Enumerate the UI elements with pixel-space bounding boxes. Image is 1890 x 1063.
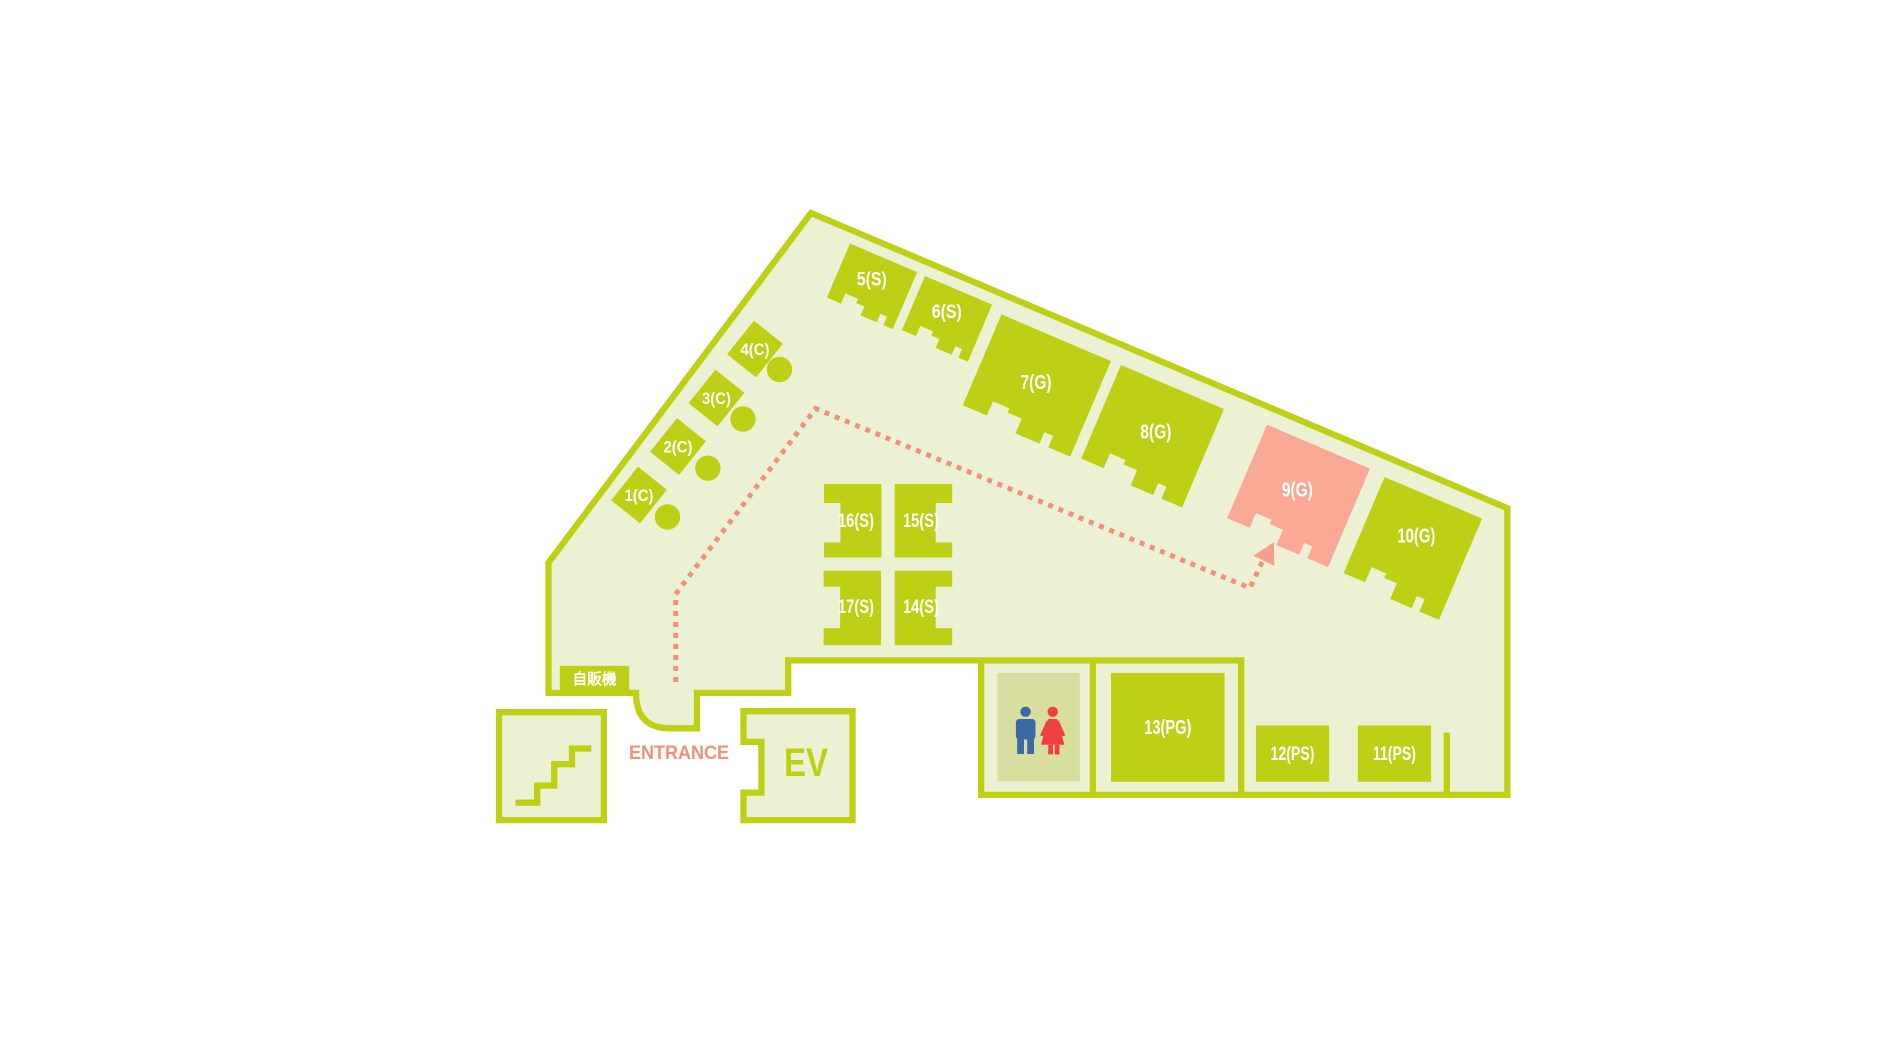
svg-text:ENTRANCE: ENTRANCE [629,743,729,764]
svg-text:7(G): 7(G) [1021,371,1052,394]
svg-text:6(S): 6(S) [932,302,962,323]
svg-text:14(S): 14(S) [903,597,939,618]
svg-text:11(PS): 11(PS) [1373,744,1416,765]
svg-text:2(C): 2(C) [664,438,693,457]
svg-text:EV: EV [784,741,828,785]
svg-text:16(S): 16(S) [838,511,874,532]
svg-text:8(G): 8(G) [1140,421,1171,444]
svg-text:自販機: 自販機 [573,670,617,688]
svg-text:5(S): 5(S) [857,269,887,290]
svg-text:9(G): 9(G) [1282,478,1313,501]
svg-text:10(G): 10(G) [1397,525,1435,548]
svg-text:4(C): 4(C) [741,340,770,359]
svg-text:17(S): 17(S) [838,597,874,618]
svg-text:3(C): 3(C) [702,389,731,408]
svg-text:15(S): 15(S) [903,511,939,532]
svg-text:13(PG): 13(PG) [1144,716,1191,739]
svg-text:12(PS): 12(PS) [1271,744,1315,765]
svg-text:1(C): 1(C) [625,486,654,505]
